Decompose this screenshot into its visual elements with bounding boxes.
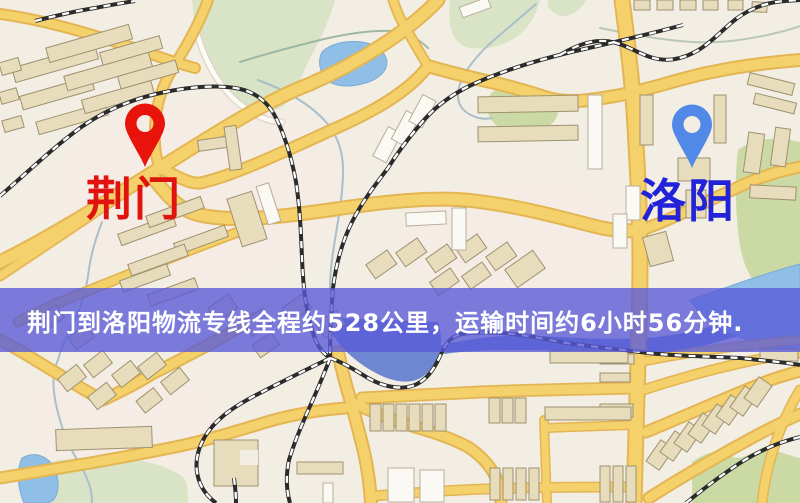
route-banner: 荆门到洛阳物流专线全程约528公里，运输时间约6小时56分钟. [0,288,800,352]
route-banner-text: 荆门到洛阳物流专线全程约528公里，运输时间约6小时56分钟. [27,303,743,338]
map-canvas [0,0,800,503]
pin-icon [667,103,717,169]
origin-pin-shape [125,104,165,168]
map-screenshot: 荆门 洛阳 荆门到洛阳物流专线全程约528公里，运输时间约6小时56分钟. [0,0,800,503]
origin-label: 荆门 [86,176,182,222]
park-top-right-small [548,0,586,16]
destination-label: 洛阳 [640,178,736,224]
destination-pin[interactable] [667,103,717,169]
pin-icon [120,102,170,168]
origin-pin[interactable] [120,102,170,168]
destination-pin-shape [672,105,712,169]
